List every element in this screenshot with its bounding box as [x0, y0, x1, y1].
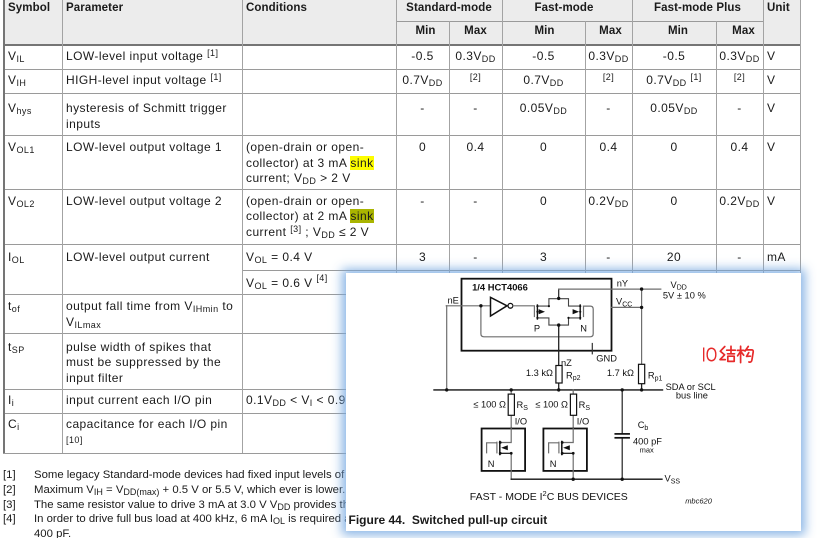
- svg-text:1.7 kΩ: 1.7 kΩ: [606, 368, 633, 378]
- svg-text:RS: RS: [578, 400, 590, 412]
- svg-text:VCC: VCC: [616, 296, 632, 308]
- svg-text:Cb: Cb: [637, 420, 648, 432]
- svg-text:RS: RS: [516, 400, 528, 412]
- svg-text:I/O: I/O: [514, 416, 526, 426]
- svg-text:VSS: VSS: [664, 473, 680, 485]
- svg-text:nZ: nZ: [561, 358, 572, 368]
- svg-text:1/4 HCT4066: 1/4 HCT4066: [472, 281, 528, 292]
- svg-text:nY: nY: [616, 278, 627, 288]
- svg-text:FAST - MODE I2C BUS DEVICES: FAST - MODE I2C BUS DEVICES: [469, 489, 627, 503]
- svg-text:GND: GND: [596, 353, 617, 363]
- svg-text:≤ 100 Ω: ≤ 100 Ω: [535, 399, 568, 409]
- svg-text:I/O: I/O: [576, 416, 588, 426]
- svg-text:max: max: [639, 445, 653, 454]
- svg-text:bus line: bus line: [675, 390, 707, 400]
- svg-text:Rp1: Rp1: [647, 370, 662, 382]
- svg-text:IO: IO: [701, 343, 717, 366]
- svg-text:Rp2: Rp2: [566, 370, 581, 382]
- svg-text:1.3 kΩ: 1.3 kΩ: [525, 368, 552, 378]
- svg-text:nE: nE: [447, 295, 458, 305]
- svg-text:≤ 100 Ω: ≤ 100 Ω: [473, 399, 506, 409]
- svg-text:mbc620: mbc620: [685, 496, 713, 505]
- svg-text:P: P: [533, 323, 539, 333]
- svg-text:5V ± 10 %: 5V ± 10 %: [662, 290, 705, 300]
- svg-text:N: N: [487, 458, 494, 468]
- svg-text:N: N: [549, 458, 556, 468]
- svg-text:N: N: [580, 323, 587, 333]
